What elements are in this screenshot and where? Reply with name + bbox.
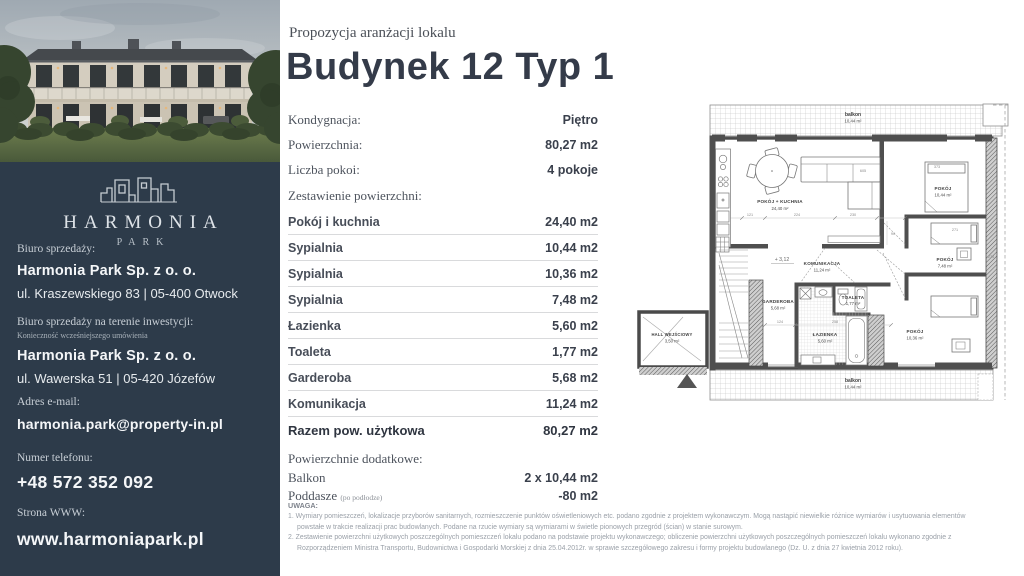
www-label: Strona WWW:	[17, 507, 267, 519]
section-label: Zestawienie powierzchni:	[288, 182, 598, 209]
meta-value: Piętro	[563, 113, 598, 127]
phone-block: Numer telefonu: +48 572 352 092	[17, 452, 267, 493]
row-label: Pokój i kuchnia	[288, 215, 380, 229]
table-row: Sypialnia 7,48 m2	[288, 287, 598, 313]
additional-row: Balkon 2 x 10,44 m2	[288, 469, 598, 487]
total-label: Razem pow. użytkowa	[288, 423, 425, 438]
footnote-item: 1. Wymiary pomieszczeń, lokalizacje przy…	[288, 512, 988, 533]
row-value: 24,40 m2	[545, 215, 598, 229]
sales-office-address: ul. Kraszewskiego 83 | 05-400 Otwock	[17, 286, 267, 301]
email-value: harmonia.park@property-in.pl	[17, 416, 267, 432]
table-row: Sypialnia 10,44 m2	[288, 235, 598, 261]
svg-text:10,36 m²: 10,36 m²	[907, 336, 925, 341]
brochure-page: HARMONIA PARK Biuro sprzedaży: Harmonia …	[0, 0, 1024, 576]
row-value: 11,24 m2	[546, 397, 598, 411]
table-row: Sypialnia 10,36 m2	[288, 261, 598, 287]
site-office-address: ul. Wawerska 51 | 05-420 Józefów	[17, 371, 267, 386]
level-marker: + 3,12	[775, 257, 790, 263]
row-value: 10,36 m2	[545, 267, 598, 281]
email-label: Adres e-mail:	[17, 396, 267, 408]
site-office-block: Biuro sprzedaży na terenie inwestycji: K…	[17, 316, 267, 386]
svg-text:224: 224	[794, 213, 800, 217]
meta-value: 4 pokoje	[547, 163, 598, 177]
svg-text:230: 230	[850, 213, 856, 217]
site-office-label: Biuro sprzedaży na terenie inwestycji:	[17, 316, 267, 328]
row-label: Balkon	[288, 470, 326, 486]
floor-plan: + 3,12 balkon 10,44 m² POKÓJ + KUCHNIA 2…	[625, 93, 1017, 413]
svg-text:10,44 m²: 10,44 m²	[845, 385, 863, 390]
svg-text:90: 90	[891, 232, 895, 236]
footnotes: UWAGA: 1. Wymiary pomieszczeń, lokalizac…	[288, 501, 988, 555]
footnote-item: 2. Zestawienie powierzchni użytkowych po…	[288, 533, 988, 554]
svg-text:275: 275	[988, 255, 994, 259]
www-block: Strona WWW: www.harmoniapark.pl	[17, 507, 267, 550]
table-row: Łazienka 5,60 m2	[288, 313, 598, 339]
table-row: Komunikacja 11,24 m2	[288, 391, 598, 417]
row-label: Garderoba	[288, 371, 351, 385]
svg-text:271: 271	[952, 228, 958, 232]
row-value: 2 x 10,44 m2	[524, 471, 598, 485]
table-row: Toaleta 1,77 m2	[288, 339, 598, 365]
svg-text:11,24 m²: 11,24 m²	[814, 268, 831, 273]
meta-row: Powierzchnia: 80,27 m2	[288, 132, 598, 157]
svg-text:121: 121	[747, 213, 753, 217]
sales-office-company: Harmonia Park Sp. z o. o.	[17, 263, 267, 279]
phone-label: Numer telefonu:	[17, 452, 267, 464]
row-label: Sypialnia	[288, 267, 343, 281]
svg-text:5,60 m²: 5,60 m²	[818, 339, 833, 344]
row-value: 5,68 m2	[552, 371, 598, 385]
footnotes-heading: UWAGA:	[288, 501, 988, 510]
sales-office-block: Biuro sprzedaży: Harmonia Park Sp. z o. …	[17, 243, 267, 301]
logo-building-icon	[90, 168, 190, 208]
svg-text:10,44 m²: 10,44 m²	[845, 119, 863, 124]
phone-value: +48 572 352 092	[17, 472, 267, 493]
row-value: 5,60 m2	[552, 319, 598, 333]
meta-label: Kondygnacja:	[288, 112, 361, 128]
row-label: Sypialnia	[288, 293, 343, 307]
svg-text:124: 124	[777, 320, 783, 324]
row-label: Łazienka	[288, 319, 341, 333]
entrance-arrow	[677, 374, 697, 388]
room-label-balkon-top: balkon 10,44 m²	[845, 112, 863, 124]
logo: HARMONIA PARK	[0, 168, 280, 248]
row-value: 7,48 m2	[552, 293, 598, 307]
total-row: Razem pow. użytkowa 80,27 m2	[288, 417, 598, 443]
row-label: Toaleta	[288, 345, 331, 359]
svg-text:1,77 m²: 1,77 m²	[846, 301, 861, 306]
table-row: Pokój i kuchnia 24,40 m2	[288, 209, 598, 235]
svg-text:10,44 m²: 10,44 m²	[935, 193, 953, 198]
meta-label: Liczba pokoi:	[288, 162, 360, 178]
row-label: Sypialnia	[288, 241, 343, 255]
svg-text:3,50 m²: 3,50 m²	[665, 339, 680, 344]
meta-row: Liczba pokoi: 4 pokoje	[288, 157, 598, 182]
svg-text:258: 258	[832, 320, 838, 324]
email-block: Adres e-mail: harmonia.park@property-in.…	[17, 396, 267, 432]
logo-name: HARMONIA	[0, 212, 280, 234]
sales-office-label: Biuro sprzedaży:	[17, 243, 267, 255]
svg-text:605: 605	[860, 169, 866, 173]
room-label-bedroom-3: POKÓJ 10,36 m²	[906, 327, 924, 341]
total-value: 80,27 m2	[543, 423, 598, 438]
svg-text:POKÓJ: POKÓJ	[934, 184, 951, 191]
room-label-balkon-bottom: balkon 10,44 m²	[845, 378, 863, 390]
meta-value: 80,27 m2	[545, 138, 598, 152]
svg-text:GARDEROBA: GARDEROBA	[762, 299, 794, 304]
additional-label: Powierzchnie dodatkowe:	[288, 443, 598, 469]
svg-text:POKÓJ: POKÓJ	[906, 327, 923, 334]
row-value: 10,44 m2	[545, 241, 598, 255]
meta-label: Powierzchnia:	[288, 137, 362, 153]
page-kicker: Propozycja aranżacji lokalu	[289, 25, 456, 42]
svg-text:POKÓJ: POKÓJ	[936, 255, 953, 262]
meta-row: Kondygnacja: Piętro	[288, 107, 598, 132]
svg-text:balkon: balkon	[845, 112, 861, 118]
svg-text:7,48 m²: 7,48 m²	[938, 264, 953, 269]
svg-text:KOMUNIKACJA: KOMUNIKACJA	[804, 261, 841, 266]
svg-text:POKÓJ + KUCHNIA: POKÓJ + KUCHNIA	[757, 197, 803, 204]
www-value: www.harmoniapark.pl	[17, 529, 267, 550]
sidebar: HARMONIA PARK Biuro sprzedaży: Harmonia …	[0, 0, 280, 576]
building-photo	[0, 0, 280, 162]
svg-text:TOALETA: TOALETA	[842, 295, 865, 300]
svg-text:balkon: balkon	[845, 378, 861, 384]
svg-text:ŁAZIENKA: ŁAZIENKA	[813, 332, 838, 337]
site-office-company: Harmonia Park Sp. z o. o.	[17, 348, 267, 364]
row-label: Komunikacja	[288, 397, 366, 411]
svg-text:5,68 m²: 5,68 m²	[771, 306, 786, 311]
row-value: 1,77 m2	[552, 345, 598, 359]
area-sheet: Kondygnacja: Piętro Powierzchnia: 80,27 …	[288, 107, 598, 505]
room-label-bedroom-2: POKÓJ 7,48 m²	[936, 255, 953, 269]
svg-text:HALL WEJŚCIOWY: HALL WEJŚCIOWY	[651, 332, 692, 337]
room-label-bedroom-1: POKÓJ 10,44 m²	[934, 184, 952, 198]
svg-text:24,40 m²: 24,40 m²	[772, 206, 790, 211]
svg-text:373: 373	[934, 165, 940, 169]
site-office-note: Konieczność wcześniejszego umówienia	[17, 331, 267, 340]
page-title: Budynek 12 Typ 1	[286, 46, 614, 89]
table-row: Garderoba 5,68 m2	[288, 365, 598, 391]
